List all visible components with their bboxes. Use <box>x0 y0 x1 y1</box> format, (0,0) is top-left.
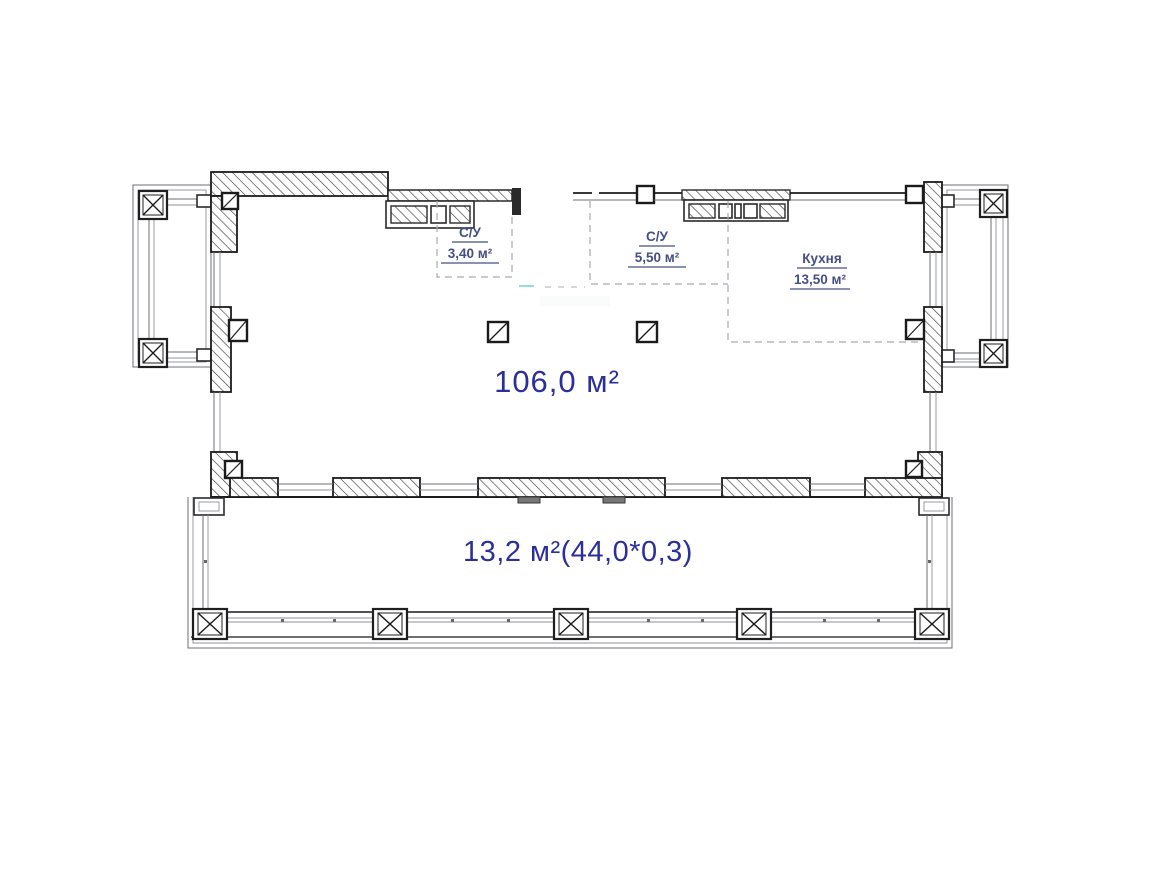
terrace-railing <box>188 497 952 648</box>
kitchen-fixtures <box>682 190 790 221</box>
bathroom-1-fixtures <box>386 201 474 228</box>
column-x-marker <box>980 340 1007 367</box>
railing-x-post <box>373 609 407 639</box>
door-track-tab <box>518 497 540 503</box>
bottom-wall <box>211 478 942 503</box>
column-x-marker <box>139 191 167 219</box>
living-area-label: 106,0 м² <box>494 364 620 399</box>
column-marker <box>906 320 924 339</box>
right-wall <box>906 182 942 497</box>
dashed-partitions <box>437 201 922 342</box>
door-track-tab <box>603 497 625 503</box>
column-marker <box>225 461 242 478</box>
bathroom-1-area: 3,40 м² <box>448 246 493 261</box>
railing-x-post <box>915 609 949 639</box>
terrace-area-label: 13,2 м²(44,0*0,3) <box>463 536 693 568</box>
column-x-marker <box>980 190 1007 217</box>
floor-plan-page: С/У 3,40 м² С/У 5,50 м² Кухня 13,50 м² 1… <box>0 0 1150 872</box>
column-x-marker <box>139 339 167 367</box>
bathroom-2-area: 5,50 м² <box>635 250 680 265</box>
railing-x-post <box>554 609 588 639</box>
wall-stub <box>512 188 521 215</box>
left-side-balcony <box>133 185 211 367</box>
column-marker <box>637 322 657 342</box>
top-wall <box>211 172 923 228</box>
erased-text-artifact <box>540 296 610 306</box>
left-wall <box>211 193 247 497</box>
railing-x-post <box>193 609 227 639</box>
column-marker <box>488 322 508 342</box>
column-marker <box>222 193 238 209</box>
kitchen-area: 13,50 м² <box>794 272 847 287</box>
column-marker <box>637 186 654 203</box>
column-marker <box>906 186 923 203</box>
railing-x-post <box>737 609 771 639</box>
right-side-balcony <box>940 185 1008 367</box>
room-labels: С/У 3,40 м² С/У 5,50 м² Кухня 13,50 м² 1… <box>441 225 850 568</box>
column-marker <box>229 320 247 341</box>
kitchen-name: Кухня <box>802 251 841 266</box>
floor-plan-drawing: С/У 3,40 м² С/У 5,50 м² Кухня 13,50 м² 1… <box>0 0 1150 872</box>
bathroom-1-name: С/У <box>459 225 482 240</box>
column-marker <box>906 461 922 477</box>
bathroom-2-name: С/У <box>646 229 669 244</box>
interior-columns <box>488 322 657 342</box>
